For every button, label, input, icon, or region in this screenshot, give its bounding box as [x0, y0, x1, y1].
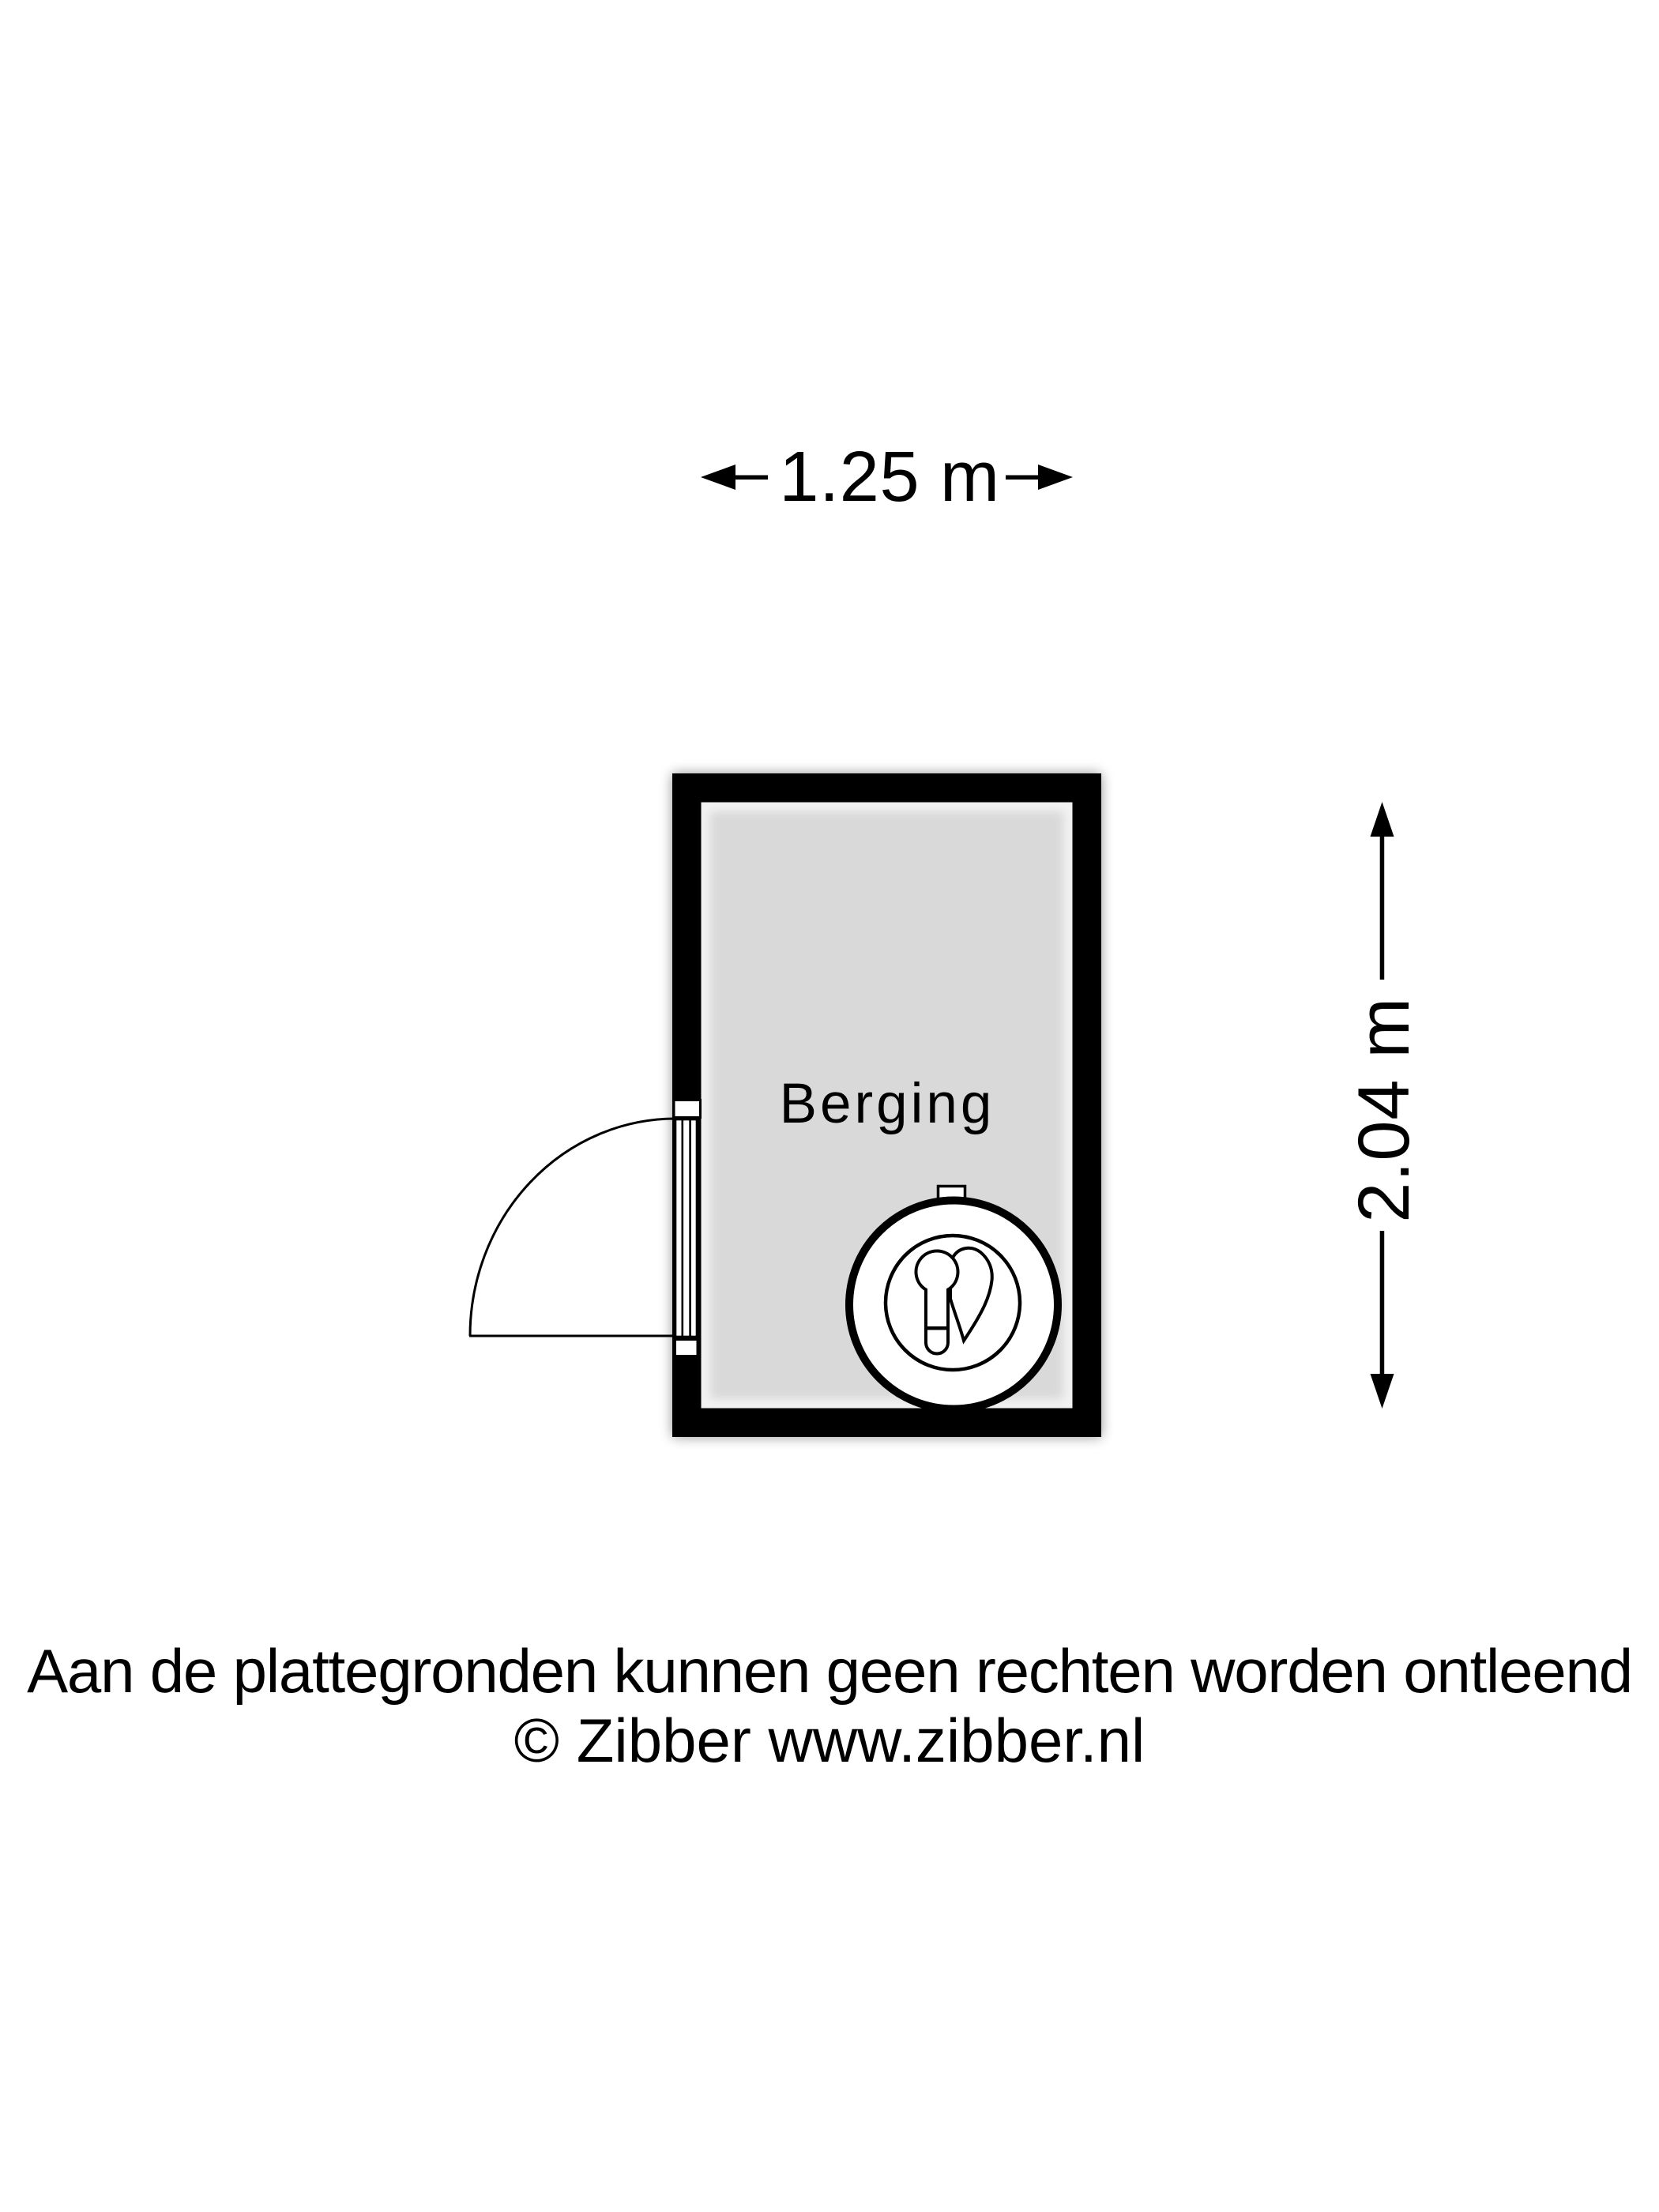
svg-text:1.25 m: 1.25 m — [779, 438, 999, 517]
svg-text:© Zibber www.zibber.nl: © Zibber www.zibber.nl — [514, 1706, 1145, 1775]
svg-text:2.04 m: 2.04 m — [1344, 997, 1424, 1222]
svg-text:Aan de plattegronden kunnen ge: Aan de plattegronden kunnen geen rechten… — [27, 1636, 1632, 1706]
svg-text:Berging: Berging — [780, 1073, 995, 1135]
